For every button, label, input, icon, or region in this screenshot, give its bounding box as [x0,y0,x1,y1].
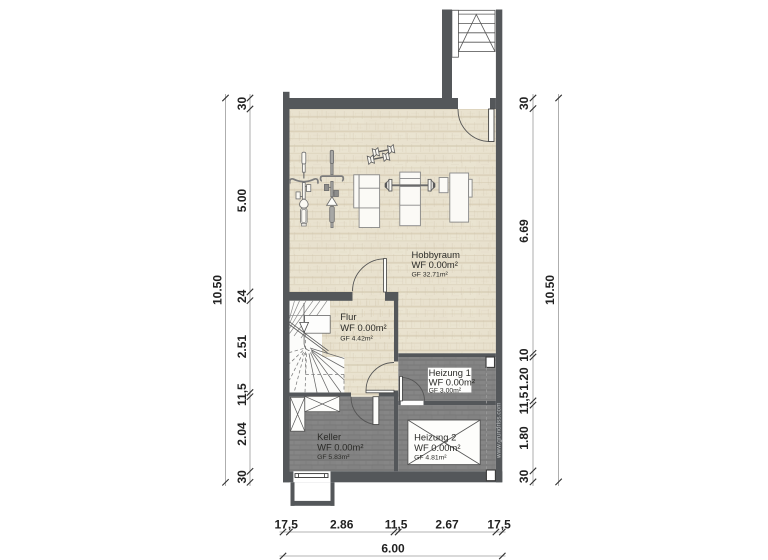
svg-text:GF 4.42m²: GF 4.42m² [340,336,373,343]
svg-text:GF 3.00m²: GF 3.00m² [429,388,462,395]
svg-text:WF 0.00m²: WF 0.00m² [340,322,386,333]
svg-text:1.20: 1.20 [517,367,531,391]
svg-text:GF 32.71m²: GF 32.71m² [412,272,449,279]
svg-text:30: 30 [235,97,249,111]
svg-text:24: 24 [235,289,249,303]
svg-text:30: 30 [517,469,531,483]
svg-text:30: 30 [235,470,249,484]
svg-text:Keller: Keller [317,431,341,442]
svg-text:17,5: 17,5 [275,518,299,532]
svg-text:Heizung 2: Heizung 2 [414,432,456,443]
svg-text:www.grundriss.com: www.grundriss.com [496,403,503,459]
svg-text:5.00: 5.00 [235,188,249,212]
svg-text:WF 0.00m²: WF 0.00m² [412,259,458,270]
svg-text:10: 10 [517,348,531,362]
svg-text:WF 0.00m²: WF 0.00m² [317,442,363,453]
svg-text:2.67: 2.67 [435,518,459,532]
svg-text:Flur: Flur [340,311,356,322]
svg-text:11,5: 11,5 [235,383,249,406]
svg-text:11,5: 11,5 [517,391,531,414]
svg-text:1.80: 1.80 [517,426,531,450]
svg-text:11,5: 11,5 [385,518,408,532]
svg-text:10.50: 10.50 [543,275,557,305]
svg-text:6.69: 6.69 [517,219,531,243]
svg-text:GF 5.83m²: GF 5.83m² [317,454,350,461]
svg-text:2.51: 2.51 [235,335,249,359]
svg-text:30: 30 [517,96,531,110]
svg-text:2.86: 2.86 [330,518,354,532]
svg-text:WF 0.00m²: WF 0.00m² [414,442,460,453]
svg-text:GF 4.81m²: GF 4.81m² [414,454,447,461]
svg-text:10.50: 10.50 [211,275,225,305]
svg-text:6.00: 6.00 [381,542,405,556]
svg-text:2.04: 2.04 [235,422,249,446]
svg-text:WF 0.00m²: WF 0.00m² [429,377,475,388]
svg-text:17,5: 17,5 [487,518,511,532]
